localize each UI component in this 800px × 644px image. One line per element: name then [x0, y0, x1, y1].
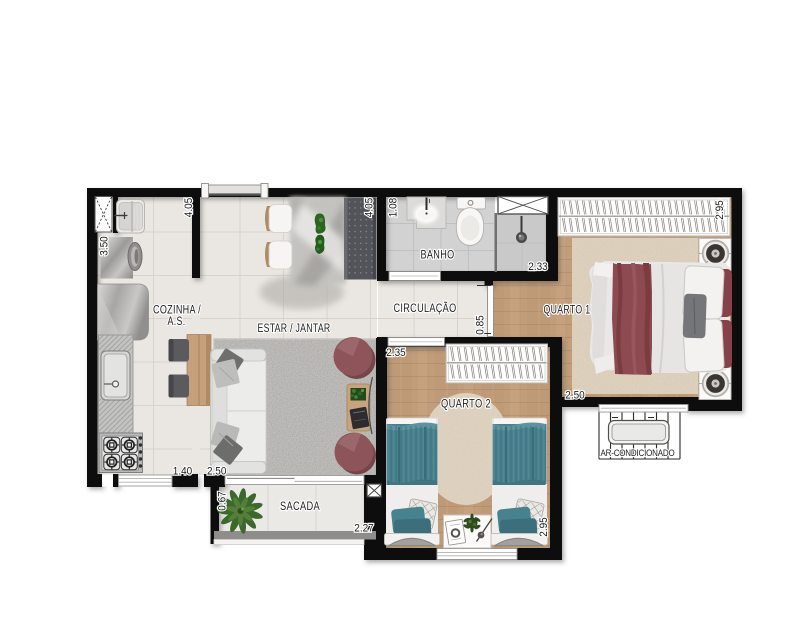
- svg-text:1.08: 1.08: [388, 198, 400, 218]
- svg-text:4.05: 4.05: [364, 198, 376, 218]
- svg-text:2.33: 2.33: [528, 261, 548, 273]
- svg-text:4.05: 4.05: [183, 198, 195, 218]
- svg-text:2.95: 2.95: [538, 517, 550, 537]
- svg-text:CIRCULAÇÃO: CIRCULAÇÃO: [394, 302, 457, 315]
- svg-text:ESTAR / JANTAR: ESTAR / JANTAR: [258, 323, 331, 335]
- svg-text:2.50: 2.50: [207, 465, 227, 477]
- svg-text:BANHO: BANHO: [421, 250, 455, 262]
- svg-text:A.S.: A.S.: [168, 316, 186, 328]
- svg-text:AR-CONDICIONADO: AR-CONDICIONADO: [601, 448, 675, 458]
- svg-text:2.27: 2.27: [354, 522, 374, 534]
- svg-text:2.95: 2.95: [714, 200, 726, 220]
- svg-text:0.67: 0.67: [217, 491, 229, 511]
- svg-text:1.40: 1.40: [173, 465, 193, 477]
- svg-text:COZINHA /: COZINHA /: [153, 305, 201, 317]
- svg-text:0.85: 0.85: [475, 315, 487, 335]
- svg-text:SACADA: SACADA: [280, 501, 320, 513]
- svg-text:2.50: 2.50: [565, 389, 585, 401]
- svg-text:3.50: 3.50: [99, 236, 111, 256]
- svg-text:2.35: 2.35: [386, 347, 406, 359]
- svg-text:QUARTO 1: QUARTO 1: [544, 305, 591, 317]
- svg-text:QUARTO 2: QUARTO 2: [441, 399, 491, 411]
